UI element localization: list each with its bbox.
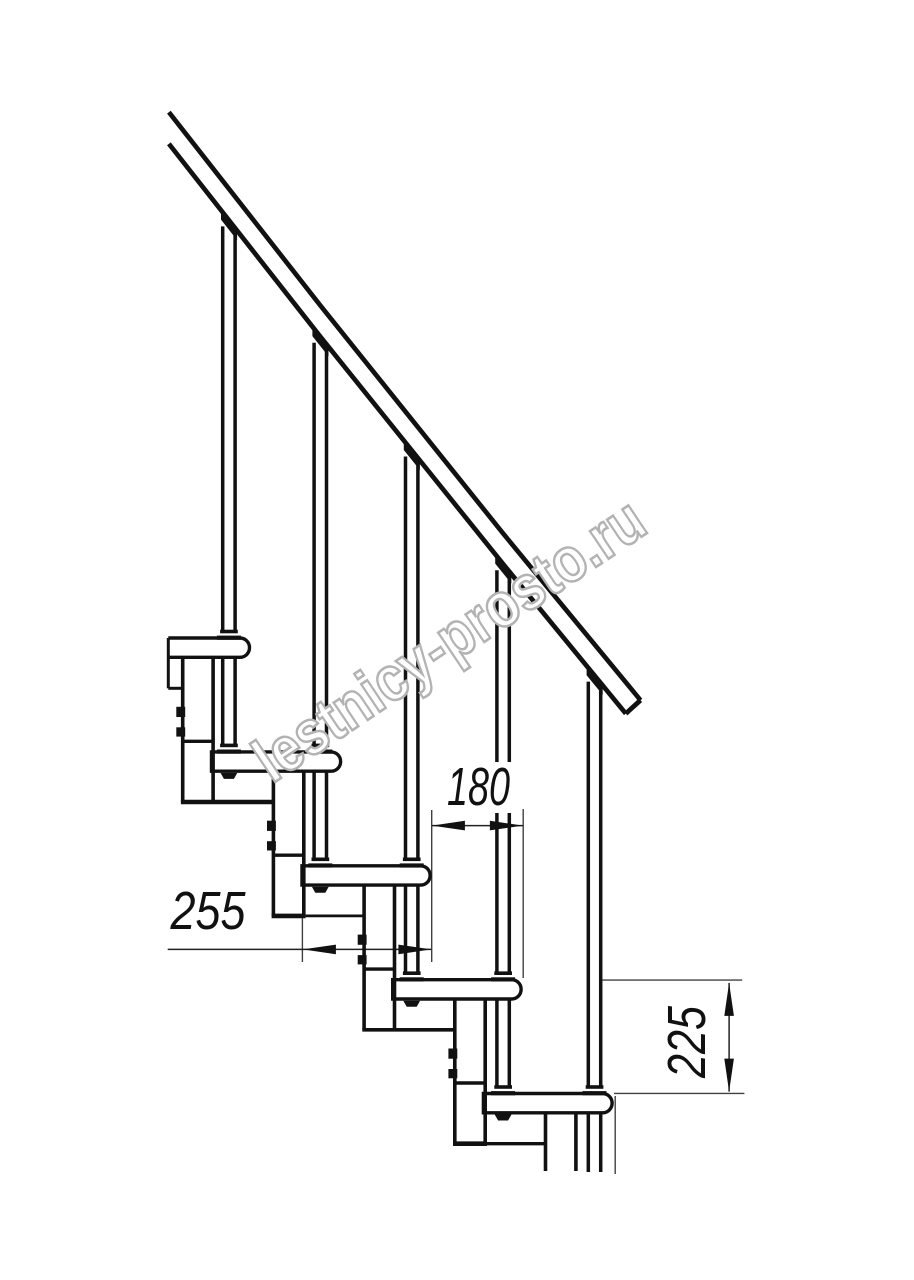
svg-text:255: 255	[170, 881, 247, 941]
svg-text:180: 180	[447, 757, 510, 817]
svg-text:225: 225	[657, 1005, 717, 1079]
